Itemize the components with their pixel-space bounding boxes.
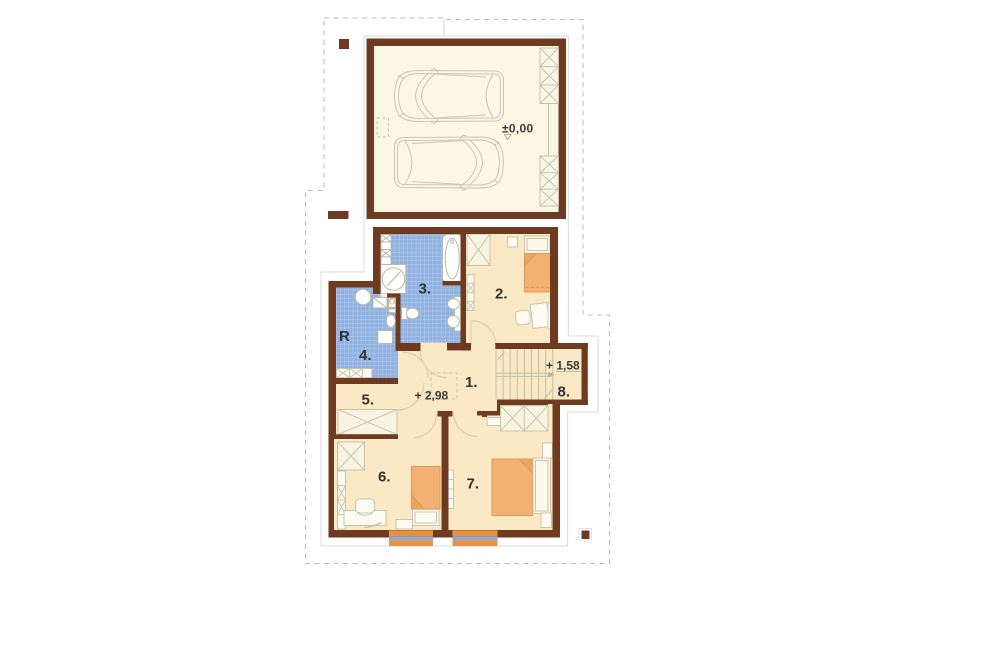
svg-text:4.: 4. bbox=[359, 347, 372, 364]
svg-text:+ 2,98: + 2,98 bbox=[415, 389, 449, 403]
svg-text:6.: 6. bbox=[378, 469, 391, 486]
svg-text:7.: 7. bbox=[467, 476, 480, 493]
svg-text:8.: 8. bbox=[558, 384, 571, 401]
svg-text:±0,00: ±0,00 bbox=[502, 122, 533, 136]
svg-text:3.: 3. bbox=[419, 281, 432, 298]
svg-text:5.: 5. bbox=[362, 392, 375, 409]
svg-text:1.: 1. bbox=[465, 374, 478, 391]
svg-text:+ 1,58: + 1,58 bbox=[546, 359, 580, 373]
svg-text:2.: 2. bbox=[495, 286, 508, 303]
svg-text:R: R bbox=[339, 328, 350, 345]
